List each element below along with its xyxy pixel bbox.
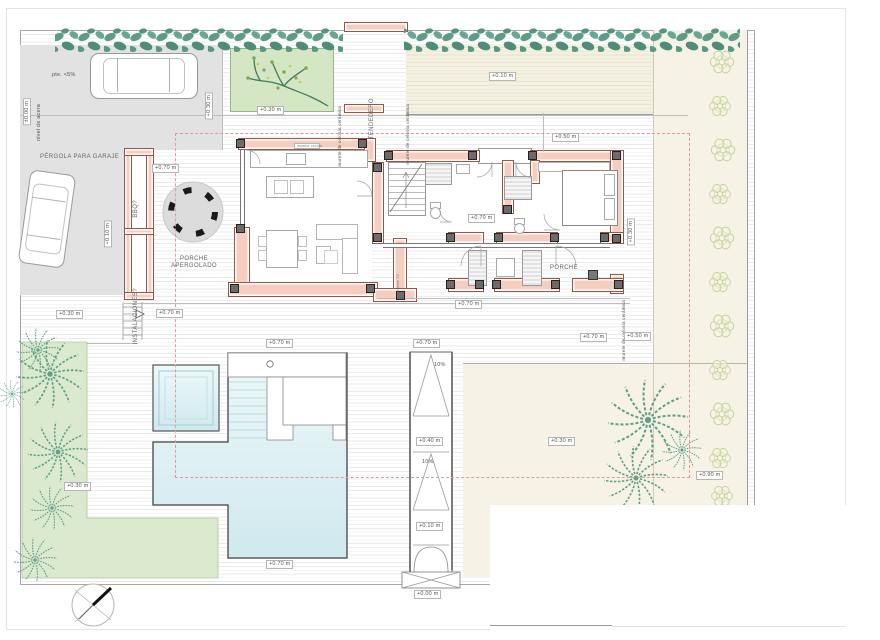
tendedero-label: TENDEDERO [369, 98, 376, 139]
path-edge-line [20, 343, 138, 344]
wall-label: murete de celosía cerámica [404, 104, 411, 164]
car-roof [24, 183, 69, 255]
porch-pergola-label: PORCHE APERGOLADO [168, 256, 220, 270]
terrace-edge-line [20, 115, 688, 116]
planter-bed [230, 48, 334, 112]
wall [124, 148, 154, 156]
wall [124, 228, 154, 235]
level-label: +0.70 m [580, 333, 607, 342]
garden-strip-top [406, 44, 656, 115]
level-label: +0.70 m [468, 214, 495, 223]
level-label: +0.30 m [206, 92, 213, 119]
level-label: +0.70 m [413, 339, 440, 348]
level-label: +0.70 m [156, 309, 183, 318]
wall-label: murete de celosía cerámica [620, 300, 627, 360]
level-label: +0.30 m [56, 310, 83, 319]
level-label: +0.00 m [414, 590, 441, 599]
car-rear-window [169, 58, 170, 92]
car [90, 53, 198, 99]
level-label: +0.30 m [64, 482, 91, 491]
slope-percent-label: 10% [434, 362, 446, 369]
pergola-label: PÉRGOLA PARA GARAJE [40, 154, 119, 161]
level-label: +0.70 m [152, 164, 179, 173]
level-label: +0.10 m [416, 522, 443, 531]
porch-label: PORCHE [550, 265, 578, 272]
bottom-line [612, 626, 845, 627]
instalaciones-label: INSTALACIONES? [133, 288, 140, 345]
floor-plan-sheet: ±0.00 m nivel de acera pte. <5% +0.30 m … [0, 0, 880, 640]
plot-edge-line [747, 30, 748, 520]
level-label: +0.10 m [105, 220, 112, 247]
level-label: +0.30 m [548, 437, 575, 446]
level-label: +0.30 m [257, 106, 284, 115]
level-label: +0.30 m [628, 218, 635, 245]
setback-dashed-line [175, 133, 690, 478]
kitchen-unit-label: mueble cocina [294, 143, 320, 149]
level-label: ±0.00 m [24, 98, 31, 125]
level-label: +0.70 m [266, 339, 293, 348]
bottom-line [490, 625, 612, 626]
tendedero-wall [344, 22, 408, 32]
street-level-label: nivel de acera [36, 104, 43, 141]
level-label: +0.50 m [624, 332, 651, 341]
car-roof [103, 58, 185, 94]
level-label: +0.50 m [552, 133, 579, 142]
white-cover [490, 505, 846, 630]
level-label: +0.10 m [489, 72, 516, 81]
slope-percent-label: 10% [422, 459, 434, 466]
level-label: +0.70 m [455, 300, 482, 309]
terrace-beige-strip [463, 505, 490, 577]
tv-unit-label: mueble TV [396, 274, 400, 293]
bbq-label: BBQ? [133, 200, 140, 218]
wall-label: murete de celosía cerámica [336, 106, 343, 166]
level-label: +0.40 m [416, 437, 443, 446]
car-windshield [117, 58, 118, 92]
tendedero-wall [344, 104, 384, 113]
level-label: +0.90 m [696, 471, 723, 480]
level-label: +0.70 m [266, 560, 293, 569]
slope-label: pte. <5% [52, 72, 75, 79]
wall [124, 148, 132, 300]
